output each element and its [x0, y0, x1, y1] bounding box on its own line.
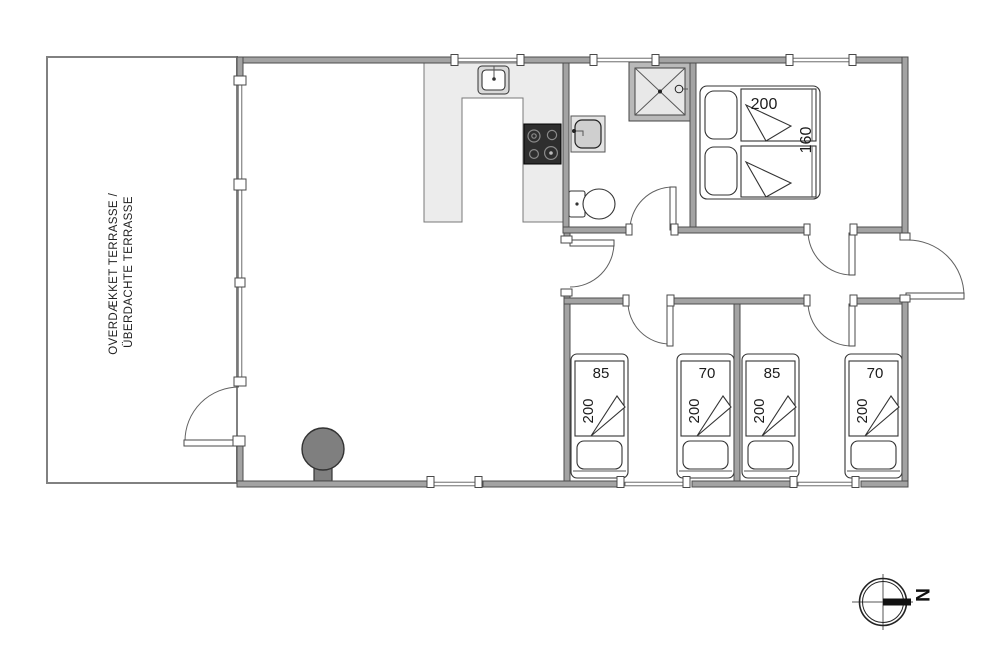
wall-segment	[237, 481, 427, 487]
door-leaf	[570, 240, 614, 246]
window	[798, 482, 853, 486]
wall-segment	[563, 63, 569, 233]
door-swing-arc	[908, 240, 964, 296]
single-bed-icon: 70 200	[677, 354, 734, 478]
door-hinge-cap	[233, 436, 245, 446]
pillow	[851, 441, 896, 469]
bedroom-left-door	[623, 295, 674, 346]
bed-depth-label: 160	[798, 127, 815, 154]
door-swing-arc	[808, 302, 852, 346]
window-cap	[852, 477, 859, 488]
door-jamb-cap	[623, 295, 629, 306]
terrace-label-line2: ÜBERDACHTE TERRASSE	[123, 196, 135, 348]
bed-width-label: 200	[751, 96, 778, 113]
door-swing-arc	[808, 231, 852, 275]
floor-plan-canvas: OVERDÆKKET TERRASSE / ÜBERDACHTE TERRASS…	[0, 0, 1000, 645]
wall-segment	[653, 57, 793, 63]
door-jamb-cap	[671, 224, 678, 235]
pillow	[705, 91, 737, 139]
door-leaf	[184, 440, 241, 446]
door-jamb-cap	[900, 233, 910, 240]
window	[625, 482, 684, 486]
kitchen	[424, 63, 563, 222]
toilet-button	[575, 202, 578, 205]
wall-segment	[850, 57, 908, 63]
wall-segment	[564, 292, 570, 481]
window	[238, 82, 242, 385]
window-cap	[683, 477, 690, 488]
door-jamb-cap	[626, 224, 632, 235]
door-leaf	[849, 233, 855, 275]
bed-width-label: 70	[699, 365, 716, 382]
bed-length-label: 200	[580, 398, 597, 423]
window-cap	[475, 477, 482, 488]
bathroom-sink-icon	[571, 116, 605, 152]
kitchen-sink-icon	[478, 66, 509, 94]
compass-icon: N	[852, 574, 932, 630]
exterior-right-door	[900, 233, 964, 302]
toilet-bowl	[583, 189, 615, 219]
window-cap	[590, 55, 597, 66]
bathroom-door	[626, 187, 678, 235]
window-cap	[617, 477, 624, 488]
terrace-area	[47, 57, 237, 483]
wood-stove-icon	[302, 428, 344, 481]
wall-segment	[902, 296, 908, 487]
wall-segment	[852, 227, 902, 233]
wall-segment	[563, 227, 630, 233]
burner-dot	[549, 151, 553, 155]
wall-segment	[483, 481, 617, 487]
floor-plan-drawing: OVERDÆKKET TERRASSE / ÜBERDACHTE TERRASS…	[0, 0, 1000, 645]
pillow	[748, 441, 793, 469]
wall-segment	[692, 481, 790, 487]
door-jamb-cap	[804, 295, 810, 306]
wall-segment	[518, 57, 597, 63]
basin	[575, 120, 601, 148]
shower-valve	[675, 85, 683, 93]
single-bed-icon: 85 200	[742, 354, 799, 478]
sink-faucet-spout	[492, 77, 496, 81]
double-bed-icon: 200 160	[700, 86, 820, 199]
door-jamb-cap	[804, 224, 810, 235]
terrace: OVERDÆKKET TERRASSE / ÜBERDACHTE TERRASS…	[47, 57, 237, 483]
wall-segment	[852, 298, 902, 304]
bed-width-label: 85	[764, 365, 781, 382]
window-mullion	[234, 179, 246, 190]
wall-segment	[690, 63, 696, 233]
wall-segment	[673, 227, 808, 233]
bed-width-label: 70	[867, 365, 884, 382]
stove-icon	[524, 124, 561, 164]
window-cap	[790, 477, 797, 488]
window-cap	[849, 55, 856, 66]
window-cap	[234, 76, 246, 85]
door-leaf	[667, 304, 673, 346]
wall-segment	[734, 304, 740, 481]
shower-drain	[658, 90, 662, 94]
window	[434, 482, 476, 486]
single-bed-icon: 70 200	[845, 354, 902, 478]
bed-length-label: 200	[854, 398, 871, 423]
shower-icon	[629, 62, 691, 121]
wall-segment	[237, 443, 243, 487]
window-cap	[234, 377, 246, 386]
door-jamb-cap	[561, 289, 572, 296]
door-jamb-cap	[850, 224, 857, 235]
door-leaf	[906, 293, 964, 299]
window-cap	[451, 55, 458, 66]
bedroom-top-door	[804, 224, 857, 275]
pillow	[705, 147, 737, 195]
wall-segment	[564, 298, 628, 304]
door-swing-arc	[628, 302, 670, 344]
wall-segment	[237, 57, 458, 63]
door-swing-arc	[570, 243, 614, 287]
window	[793, 58, 850, 62]
bed-width-label: 85	[593, 365, 610, 382]
window	[458, 58, 518, 62]
wall-segment	[670, 298, 808, 304]
window-cap	[427, 477, 434, 488]
wall-segment	[902, 57, 908, 240]
wall-segment	[861, 481, 908, 487]
bed-length-label: 200	[686, 398, 703, 423]
single-bed-icon: 85 200	[571, 354, 628, 478]
north-label: N	[911, 588, 932, 602]
toilet-icon	[569, 189, 615, 219]
door-jamb-cap	[850, 295, 857, 306]
door-jamb-cap	[561, 236, 572, 243]
door-swing-arc	[630, 187, 673, 230]
window-cap	[517, 55, 524, 66]
bedroom-right-door	[804, 295, 857, 346]
door-leaf	[849, 304, 855, 346]
stove-body	[302, 428, 344, 470]
faucet-handle	[572, 129, 576, 133]
terrace-label-line1: OVERDÆKKET TERRASSE /	[108, 192, 120, 354]
hallway-door	[561, 236, 614, 296]
pillow	[577, 441, 622, 469]
window-cap	[652, 55, 659, 66]
door-jamb-cap	[667, 295, 674, 306]
door-hinge-cap	[900, 295, 910, 302]
pillow	[683, 441, 728, 469]
window-cap	[786, 55, 793, 66]
window-mullion	[235, 278, 245, 287]
window	[597, 58, 653, 62]
north-pointer	[883, 599, 911, 606]
bed-length-label: 200	[751, 398, 768, 423]
